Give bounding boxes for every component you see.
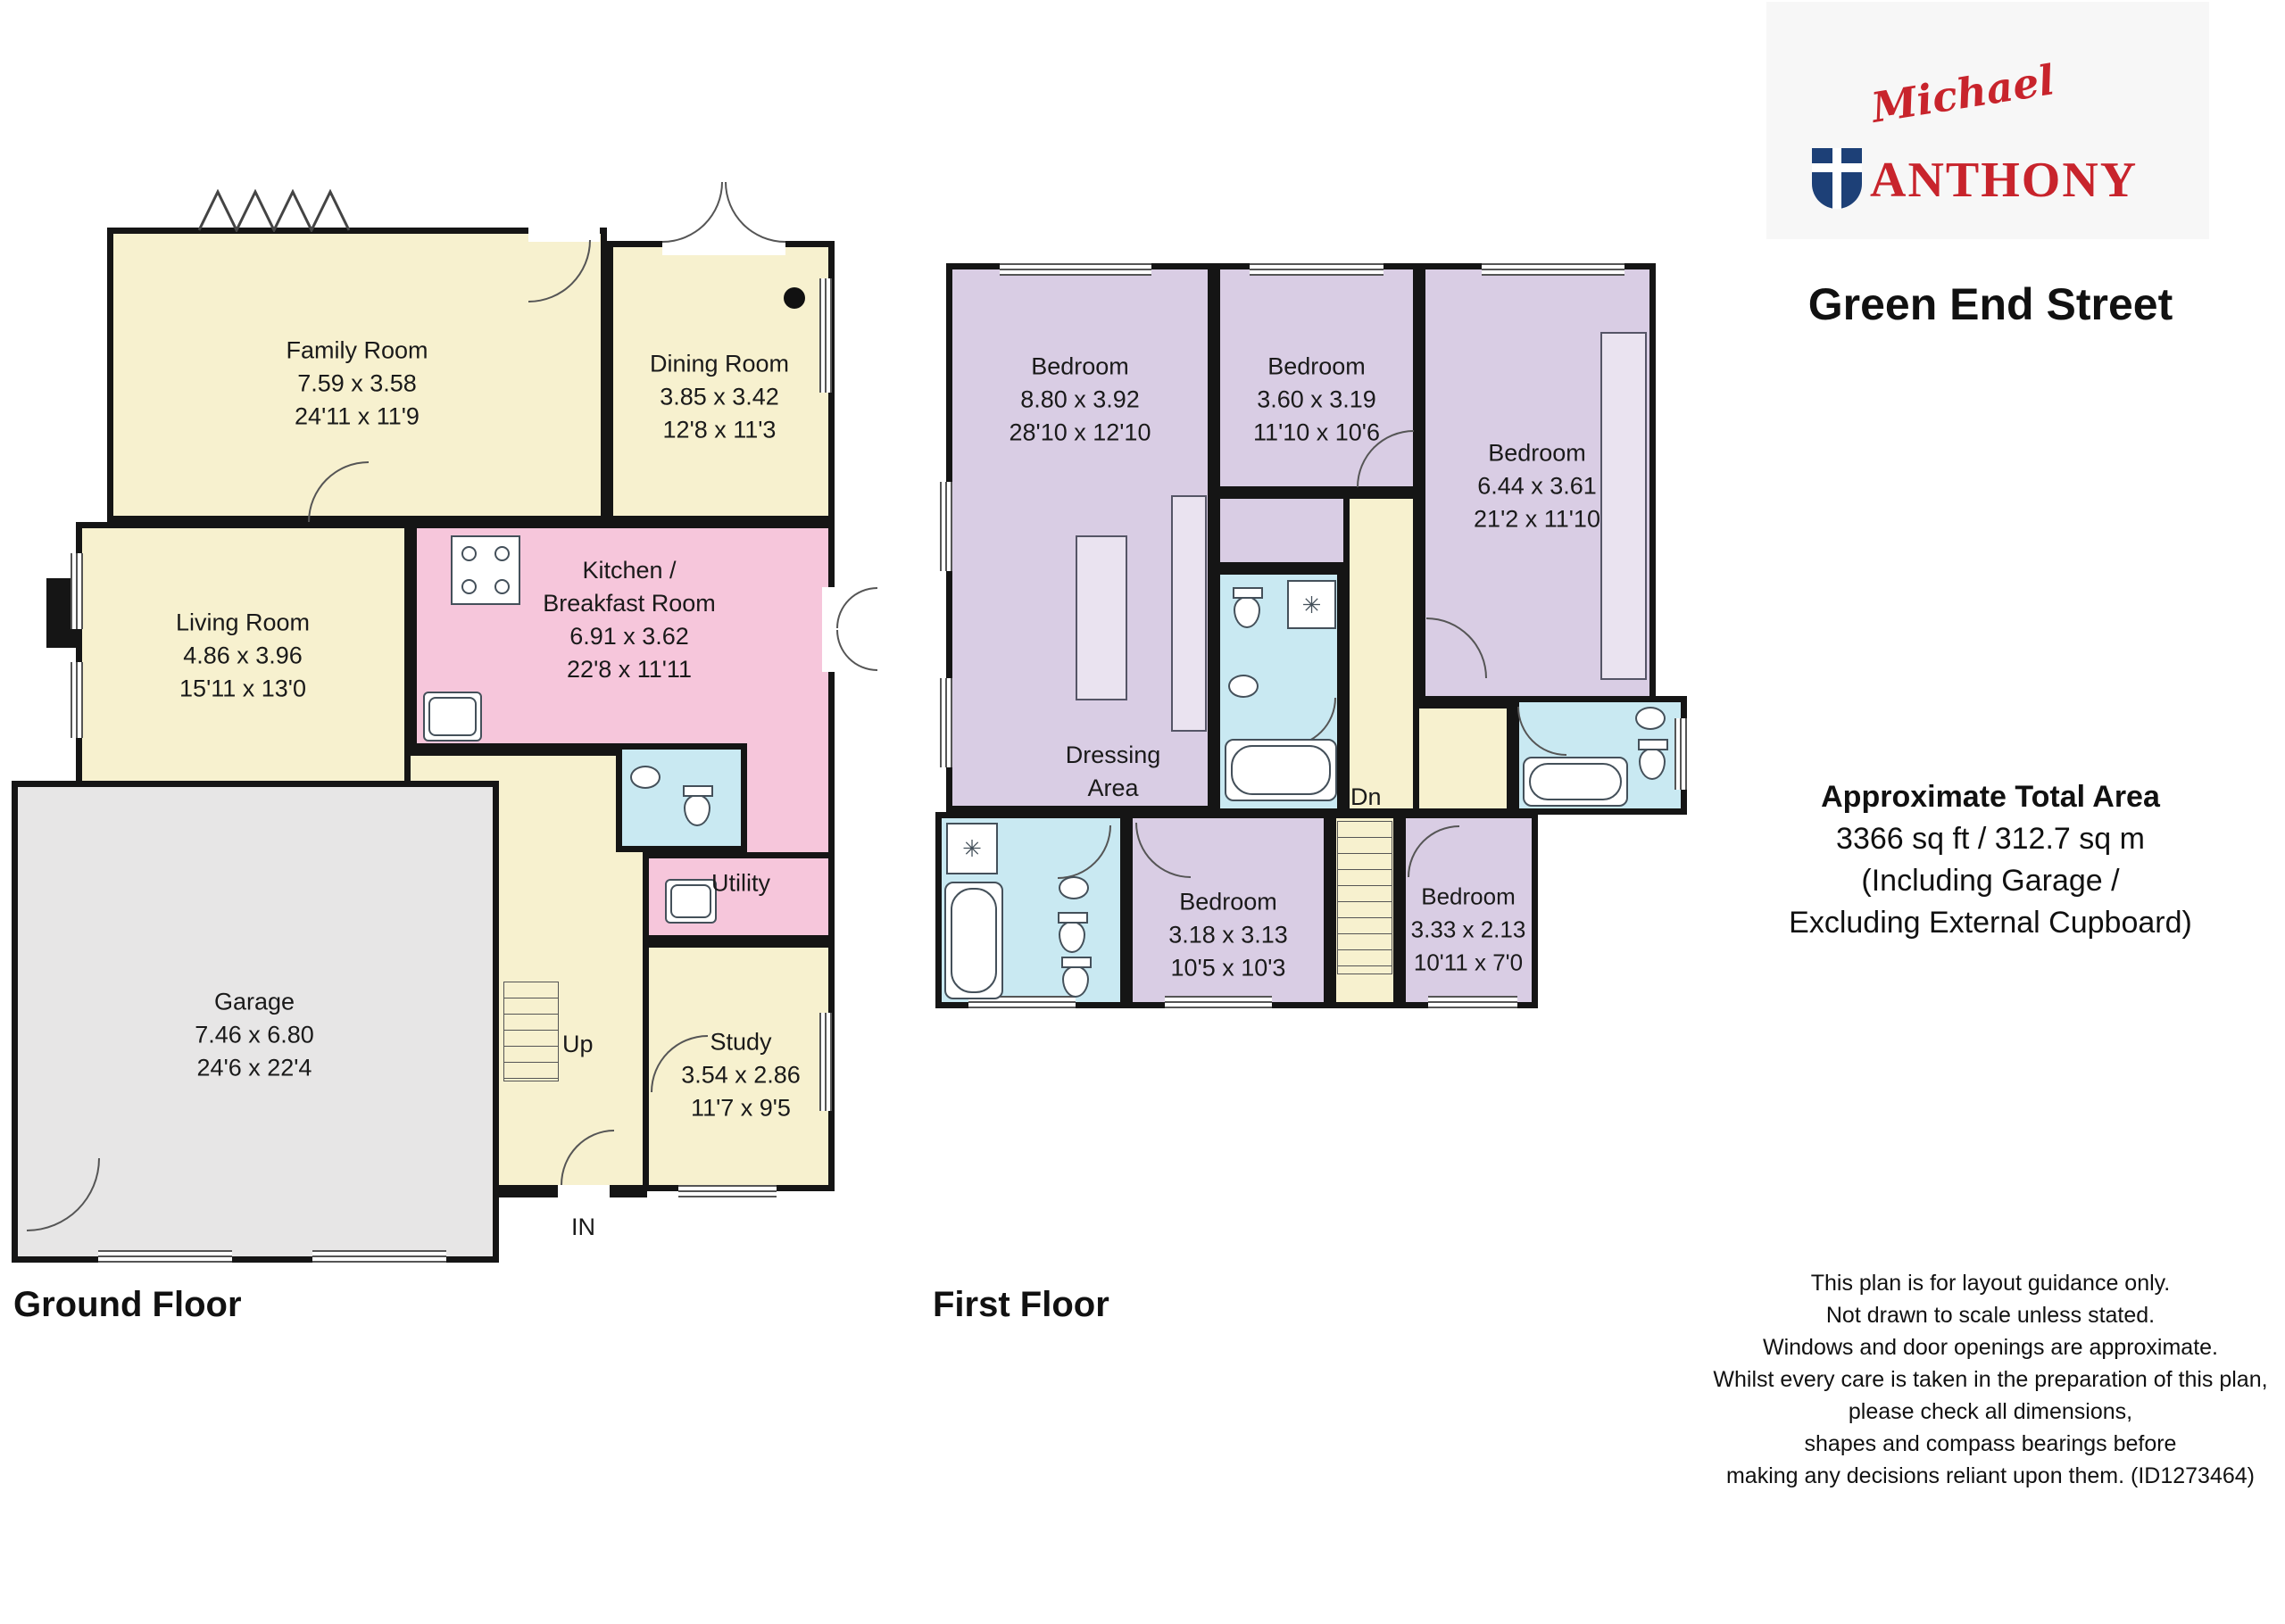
disclaimer-line: please check all dimensions,	[1687, 1396, 2285, 1428]
bedroom3-window	[1482, 263, 1624, 276]
bedroom2-label: Bedroom 3.60 x 3.19 11'10 x 10'6	[1253, 351, 1380, 450]
floor-plan-page: Up IN Family Room 7.59 x 3.58 24'11 x 11…	[0, 0, 2285, 1624]
kitchen-french-arc-bottom	[836, 630, 877, 671]
bedroom1-window	[1000, 263, 1151, 276]
dressing-wardrobe	[1076, 535, 1127, 700]
bedroom3-label: Bedroom 6.44 x 3.61 21'2 x 11'10	[1474, 437, 1600, 536]
living-window-2	[71, 662, 83, 738]
kitchen-label: Kitchen / Breakfast Room 6.91 x 3.62 22'…	[543, 554, 716, 686]
kitchen-french-opening	[822, 587, 836, 672]
stairs-up	[503, 982, 559, 1081]
study-window-bottom	[678, 1185, 777, 1197]
wall-kitchen-bottom	[411, 743, 622, 756]
dining-french-opening	[662, 241, 785, 255]
burner-icon	[494, 546, 510, 561]
room-landing-extension	[1419, 702, 1513, 815]
agency-logo-caps: ANTHONY	[1870, 152, 2138, 209]
total-area-including: (Including Garage /	[1741, 860, 2240, 902]
wc-sink-icon	[630, 766, 661, 789]
bedroom4-window	[1165, 996, 1272, 1008]
garage-opening-1	[98, 1250, 232, 1263]
ensuite-bath-icon	[1225, 739, 1337, 801]
utility-sink-icon	[665, 879, 717, 924]
garage-label: Garage 7.46 x 6.80 24'6 x 22'4	[195, 986, 314, 1085]
total-area-heading: Approximate Total Area	[1741, 776, 2240, 818]
dressing-bay-window-1	[940, 482, 952, 571]
property-title: Green End Street	[1741, 278, 2240, 330]
disclaimer-block: This plan is for layout guidance only. N…	[1687, 1267, 2285, 1492]
bathroom-left-shower-icon: ✳	[946, 823, 998, 874]
bedroom1-label: Bedroom 8.80 x 3.92 28'10 x 12'10	[1010, 351, 1151, 450]
kitchen-french-arc-top	[836, 587, 877, 628]
entrance-opening	[558, 1185, 610, 1197]
dining-french-arc-left	[662, 182, 723, 243]
dining-french-arc-right	[725, 182, 785, 243]
disclaimer-line: Not drawn to scale unless stated.	[1687, 1299, 2285, 1331]
agency-shield-icon	[1812, 148, 1862, 209]
stairs-up-label: Up	[562, 1031, 594, 1058]
ground-floor-title: Ground Floor	[13, 1285, 242, 1325]
bedroom5-window	[1428, 996, 1517, 1008]
disclaimer-line: making any decisions reliant upon them. …	[1687, 1460, 2285, 1492]
bathroom-right-sink-icon	[1635, 707, 1666, 730]
stairs-down	[1337, 821, 1392, 974]
bedroom4-label: Bedroom 3.18 x 3.13 10'5 x 10'3	[1168, 886, 1288, 985]
dining-window	[819, 278, 832, 393]
disclaimer-line: Windows and door openings are approximat…	[1687, 1331, 2285, 1363]
stairs-down-label: Dn	[1350, 783, 1382, 811]
room-wc	[616, 743, 747, 852]
dining-room-label: Dining Room 3.85 x 3.42 12'8 x 11'3	[650, 348, 789, 447]
flue-dot	[784, 287, 805, 309]
study-label: Study 3.54 x 2.86 11'7 x 9'5	[681, 1026, 801, 1125]
bathroom-right-window	[1674, 718, 1687, 790]
bifold-window-zigzag	[198, 189, 350, 232]
disclaimer-line: This plan is for layout guidance only.	[1687, 1267, 2285, 1299]
total-area-block: Approximate Total Area 3366 sq ft / 312.…	[1741, 776, 2240, 944]
entrance-label: IN	[571, 1214, 595, 1241]
family-room-label: Family Room 7.59 x 3.58 24'11 x 11'9	[286, 335, 428, 434]
disclaimer-line: Whilst every care is taken in the prepar…	[1687, 1363, 2285, 1396]
bathroom-right-bath-icon	[1523, 757, 1628, 807]
burner-icon	[461, 546, 477, 561]
room-landing	[1343, 493, 1419, 815]
dressing-bay-window-2	[940, 678, 952, 767]
garage-opening-2	[312, 1250, 446, 1263]
living-window-1	[71, 553, 83, 629]
burner-icon	[494, 579, 510, 594]
burner-icon	[461, 579, 477, 594]
total-area-value: 3366 sq ft / 312.7 sq m	[1741, 818, 2240, 860]
living-room-label: Living Room 4.86 x 3.96 15'11 x 13'0	[176, 607, 310, 706]
hob-icon	[451, 535, 520, 605]
bathroom-left-bath-icon	[944, 882, 1003, 999]
bathroom-left-sink-icon	[1059, 876, 1089, 899]
bedroom2-window	[1250, 263, 1383, 276]
disclaimer-line: shapes and compass bearings before	[1687, 1428, 2285, 1460]
kitchen-sink-icon	[423, 692, 482, 742]
bedroom3-closet	[1600, 332, 1647, 680]
ensuite-shower-icon: ✳	[1287, 580, 1336, 629]
utility-label: Utility	[711, 867, 770, 900]
study-window-side	[819, 1013, 832, 1111]
bedroom5-label: Bedroom 3.33 x 2.13 10'11 x 7'0	[1411, 881, 1526, 980]
ensuite-sink-icon	[1228, 675, 1259, 698]
dressing-wardrobe-2	[1171, 495, 1207, 732]
first-floor-title: First Floor	[933, 1285, 1109, 1325]
room-kitchen-lower	[741, 743, 835, 852]
total-area-excluding: Excluding External Cupboard)	[1741, 902, 2240, 944]
dressing-area-label: Dressing Area	[1066, 739, 1161, 805]
